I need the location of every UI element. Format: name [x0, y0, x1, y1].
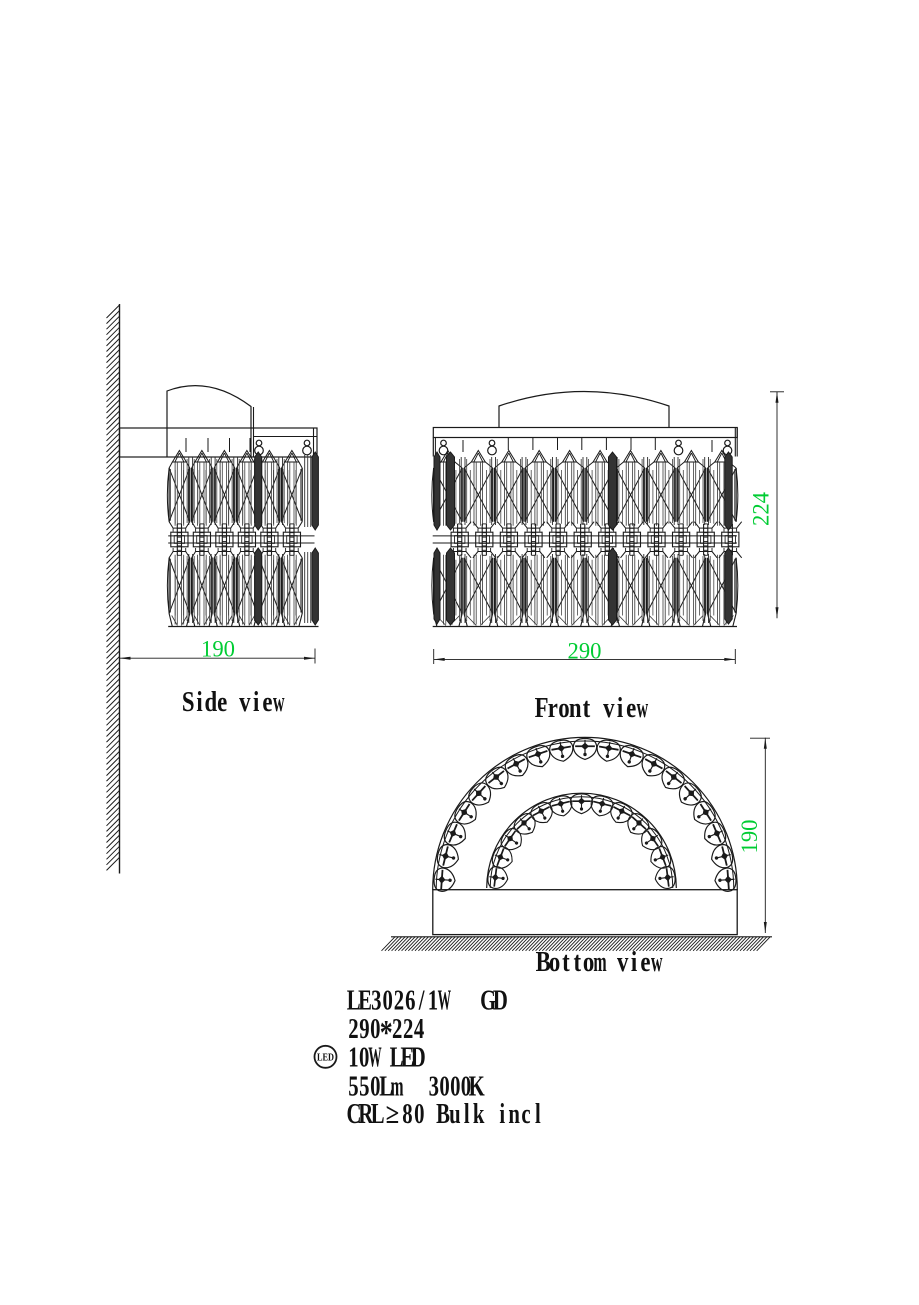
- svg-text:290: 290: [568, 639, 602, 664]
- svg-text:LED: LED: [317, 1052, 334, 1064]
- svg-text:o: o: [549, 946, 560, 978]
- svg-text:D: D: [493, 986, 508, 1017]
- svg-text:0: 0: [414, 1099, 424, 1130]
- svg-text:l: l: [464, 1099, 470, 1130]
- svg-text:r: r: [548, 692, 558, 724]
- svg-text:v: v: [617, 946, 628, 978]
- svg-text:2: 2: [394, 986, 404, 1017]
- svg-text:S: S: [182, 686, 195, 718]
- svg-text:n: n: [508, 1099, 520, 1130]
- svg-text:E: E: [358, 986, 372, 1017]
- svg-text:d: d: [204, 686, 217, 718]
- svg-text:i: i: [196, 686, 202, 718]
- svg-text:2: 2: [348, 1014, 358, 1045]
- svg-text:/: /: [418, 986, 426, 1017]
- svg-text:u: u: [449, 1099, 461, 1130]
- svg-text:m: m: [391, 1071, 404, 1102]
- svg-text:0: 0: [450, 1072, 460, 1103]
- svg-text:n: n: [569, 692, 582, 724]
- svg-text:m: m: [593, 945, 606, 977]
- svg-text:w: w: [273, 685, 285, 717]
- svg-text:k: k: [473, 1099, 485, 1130]
- svg-text:i: i: [617, 692, 623, 724]
- svg-text:e: e: [640, 946, 650, 978]
- svg-text:o: o: [558, 692, 569, 724]
- svg-text:0: 0: [382, 986, 392, 1017]
- svg-text:8: 8: [402, 1099, 412, 1130]
- svg-text:224: 224: [749, 492, 774, 526]
- svg-text:2: 2: [403, 1014, 413, 1045]
- svg-text:D: D: [411, 1043, 426, 1074]
- svg-text:W: W: [368, 1041, 381, 1073]
- svg-text:i: i: [499, 1099, 505, 1130]
- svg-text:o: o: [583, 946, 594, 978]
- svg-text:B: B: [436, 1099, 450, 1130]
- svg-text:3: 3: [371, 986, 381, 1017]
- svg-text:t: t: [583, 692, 591, 724]
- svg-text:v: v: [239, 686, 250, 718]
- svg-text:i: i: [631, 946, 637, 978]
- svg-text:e: e: [262, 686, 272, 718]
- svg-text:w: w: [637, 691, 649, 723]
- svg-text:l: l: [535, 1099, 541, 1130]
- svg-text:w: w: [651, 945, 663, 977]
- svg-text:F: F: [535, 692, 549, 724]
- svg-text:190: 190: [737, 820, 762, 854]
- svg-text:e: e: [217, 686, 227, 718]
- svg-text:c: c: [521, 1099, 530, 1130]
- svg-text:0: 0: [439, 1072, 449, 1103]
- svg-text:L: L: [371, 1099, 385, 1130]
- svg-text:3: 3: [429, 1072, 439, 1103]
- svg-text:1: 1: [428, 986, 438, 1017]
- svg-text:6: 6: [405, 986, 415, 1017]
- svg-text:v: v: [603, 692, 614, 724]
- svg-text:2: 2: [392, 1014, 402, 1045]
- svg-text:5: 5: [348, 1072, 358, 1103]
- svg-text:i: i: [253, 686, 259, 718]
- svg-text:4: 4: [414, 1014, 424, 1045]
- svg-text:1: 1: [348, 1043, 358, 1074]
- svg-text:5: 5: [359, 1072, 369, 1103]
- svg-text:e: e: [626, 692, 636, 724]
- svg-text:t: t: [573, 946, 581, 978]
- svg-text:190: 190: [201, 637, 235, 662]
- svg-text:W: W: [438, 984, 451, 1016]
- svg-text:≥: ≥: [386, 1099, 400, 1130]
- svg-text:t: t: [562, 946, 570, 978]
- svg-text:K: K: [469, 1072, 485, 1103]
